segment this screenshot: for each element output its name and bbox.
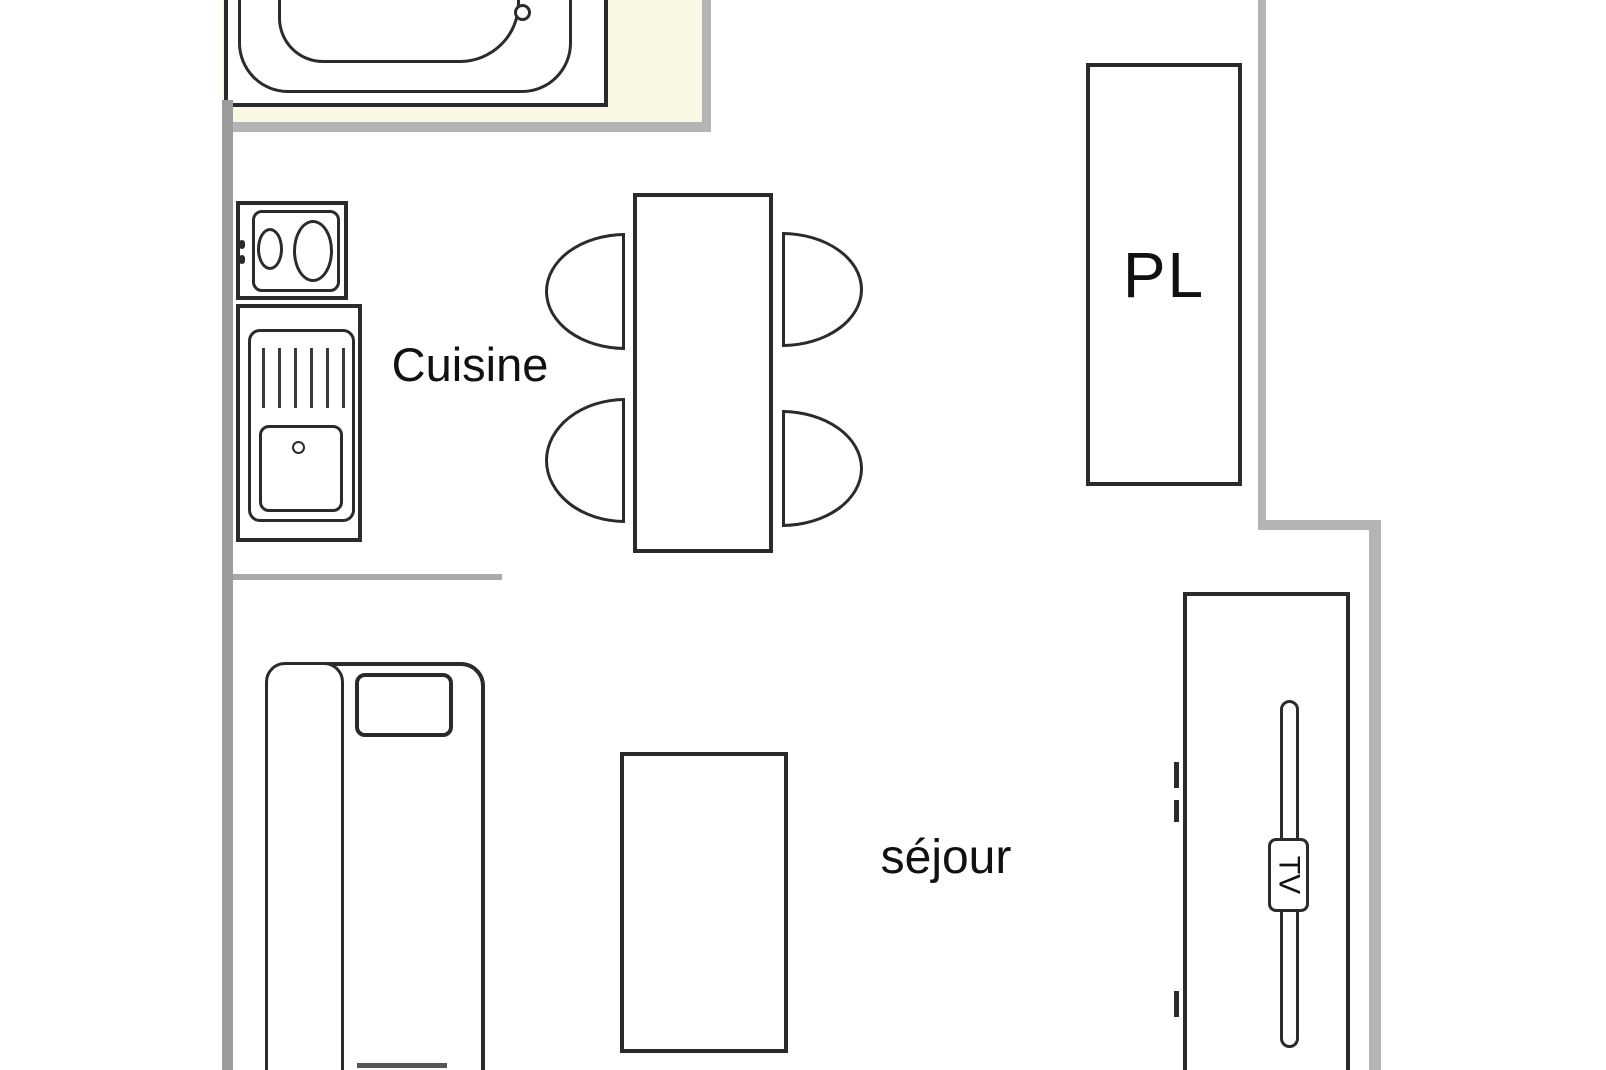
tv-unit — [1183, 592, 1350, 1070]
tv-label: TV — [1272, 848, 1306, 903]
wall-tick — [1174, 762, 1179, 788]
bathroom-wall-right — [702, 0, 711, 132]
sink-drainboard-line — [326, 348, 329, 408]
floor-plan: PL TV Cuisine séjour — [0, 0, 1606, 1070]
sink-basin — [259, 425, 343, 512]
wall-kitchen-partition — [233, 574, 502, 580]
wall-right-step — [1258, 520, 1381, 530]
coffee-table — [620, 752, 788, 1053]
bed-footboard — [357, 1063, 447, 1068]
chair — [545, 398, 625, 523]
wall-right-lower — [1369, 520, 1381, 1070]
living-room-label: séjour — [848, 828, 1044, 886]
wall-tick — [1174, 991, 1179, 1017]
wall-right-upper — [1258, 0, 1266, 528]
stove-knob — [239, 255, 245, 264]
stove-burner-small — [257, 228, 283, 270]
chair — [782, 410, 863, 527]
sink-drainboard-line — [342, 348, 345, 408]
sink-drainboard-line — [262, 348, 265, 408]
bathtub-basin — [278, 0, 520, 63]
bathtub-drain — [514, 4, 531, 21]
wall-tick — [1174, 800, 1179, 822]
sink-drainboard-line — [294, 348, 297, 408]
stove-burner-large — [293, 220, 333, 282]
chair — [782, 232, 863, 347]
wall-left — [222, 100, 233, 1070]
sink-drainboard-line — [278, 348, 281, 408]
dining-table — [633, 193, 773, 553]
closet: PL — [1086, 63, 1242, 486]
sink-drain — [292, 441, 305, 454]
bed-pillow — [355, 673, 453, 737]
stove-knob — [239, 240, 245, 249]
bathroom-wall-bottom — [222, 122, 711, 132]
closet-label: PL — [1123, 238, 1205, 312]
bed-side-section — [265, 662, 344, 1070]
sink-drainboard-line — [310, 348, 313, 408]
kitchen-room-label: Cuisine — [372, 338, 568, 390]
chair — [545, 233, 625, 350]
